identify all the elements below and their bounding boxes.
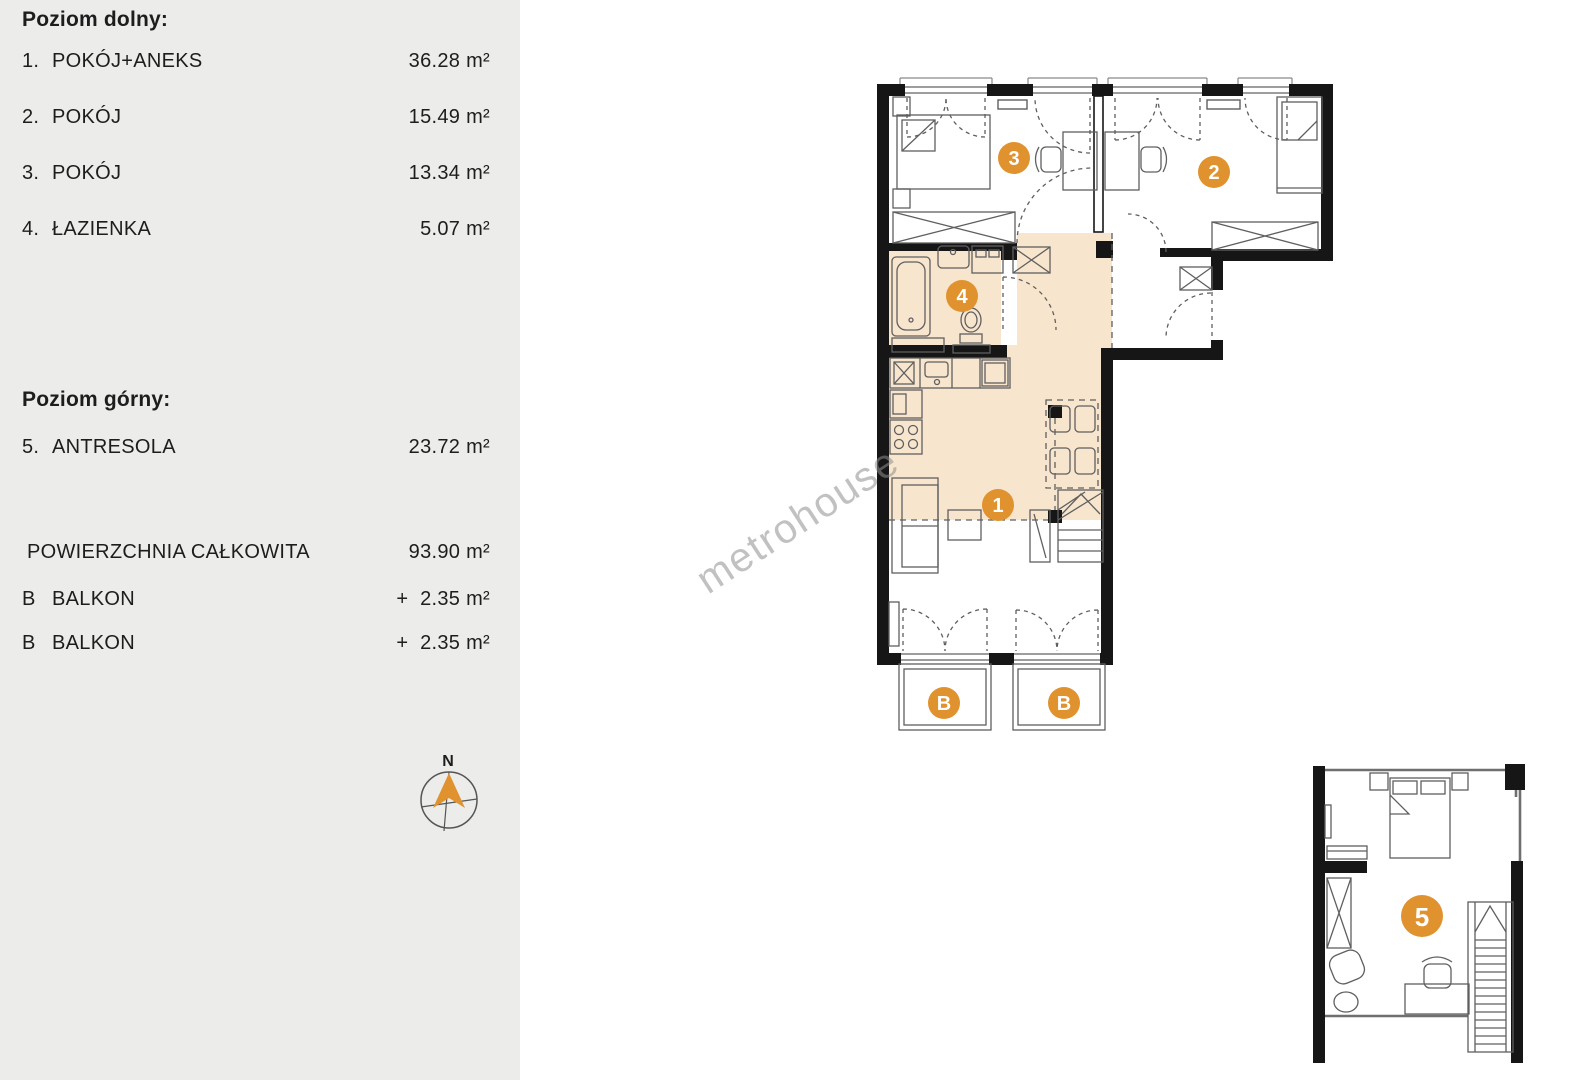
balcony-letter: B — [22, 588, 52, 611]
balcony-name: BALKON — [52, 588, 396, 611]
balcony-row: B BALKON + 2.35 m² — [22, 632, 490, 655]
room-number: 4. — [22, 218, 52, 241]
total-area: 93.90 m² — [409, 541, 490, 564]
balcony-area: + 2.35 m² — [396, 632, 490, 655]
room-area: 36.28 m² — [409, 50, 490, 73]
upper-level-heading: Poziom górny: — [22, 388, 170, 412]
room-number: 2. — [22, 106, 52, 129]
lower-level-heading: Poziom dolny: — [22, 8, 168, 32]
room-marker-label: B — [1057, 693, 1071, 715]
highlighted-rooms — [889, 233, 1112, 520]
room-marker-label: 4 — [956, 286, 968, 308]
room-number: 5. — [22, 436, 52, 459]
area-row: 2. POKÓJ 15.49 m² — [22, 106, 490, 129]
area-row: 4. ŁAZIENKA 5.07 m² — [22, 218, 490, 241]
compass-icon: N — [403, 738, 495, 840]
room-area: 15.49 m² — [409, 106, 490, 129]
room-area: 5.07 m² — [420, 218, 490, 241]
room-name: POKÓJ+ANEKS — [52, 50, 409, 73]
room-marker-label: 3 — [1008, 148, 1019, 170]
balcony-row: B BALKON + 2.35 m² — [22, 588, 490, 611]
room-marker-label: 1 — [992, 495, 1003, 517]
compass-north-label: N — [442, 753, 454, 770]
room-name: ANTRESOLA — [52, 436, 409, 459]
total-label: POWIERZCHNIA CAŁKOWITA — [27, 541, 409, 564]
room-area: 13.34 m² — [409, 162, 490, 185]
area-row: 1. POKÓJ+ANEKS 36.28 m² — [22, 50, 490, 73]
room-number: 3. — [22, 162, 52, 185]
area-row: 3. POKÓJ 13.34 m² — [22, 162, 490, 185]
total-area-row: POWIERZCHNIA CAŁKOWITA 93.90 m² — [22, 541, 490, 564]
page: Poziom dolny: 1. POKÓJ+ANEKS 36.28 m² 2.… — [0, 0, 1590, 1080]
room-markers: 12345BB — [928, 142, 1443, 937]
legend-sidebar: Poziom dolny: 1. POKÓJ+ANEKS 36.28 m² 2.… — [0, 0, 520, 1080]
area-row: 5. ANTRESOLA 23.72 m² — [22, 436, 490, 459]
room-area: 23.72 m² — [409, 436, 490, 459]
balcony-area: + 2.35 m² — [396, 588, 490, 611]
room-name: POKÓJ — [52, 162, 409, 185]
room-name: ŁAZIENKA — [52, 218, 420, 241]
room-marker-label: B — [937, 693, 951, 715]
room-marker-label: 5 — [1415, 902, 1429, 932]
room-marker-label: 2 — [1208, 162, 1219, 184]
partition-wall — [1094, 96, 1103, 232]
balcony-letter: B — [22, 632, 52, 655]
balcony-name: BALKON — [52, 632, 396, 655]
room-number: 1. — [22, 50, 52, 73]
room-name: POKÓJ — [52, 106, 409, 129]
floor-plan: 12345BB — [520, 0, 1590, 1080]
